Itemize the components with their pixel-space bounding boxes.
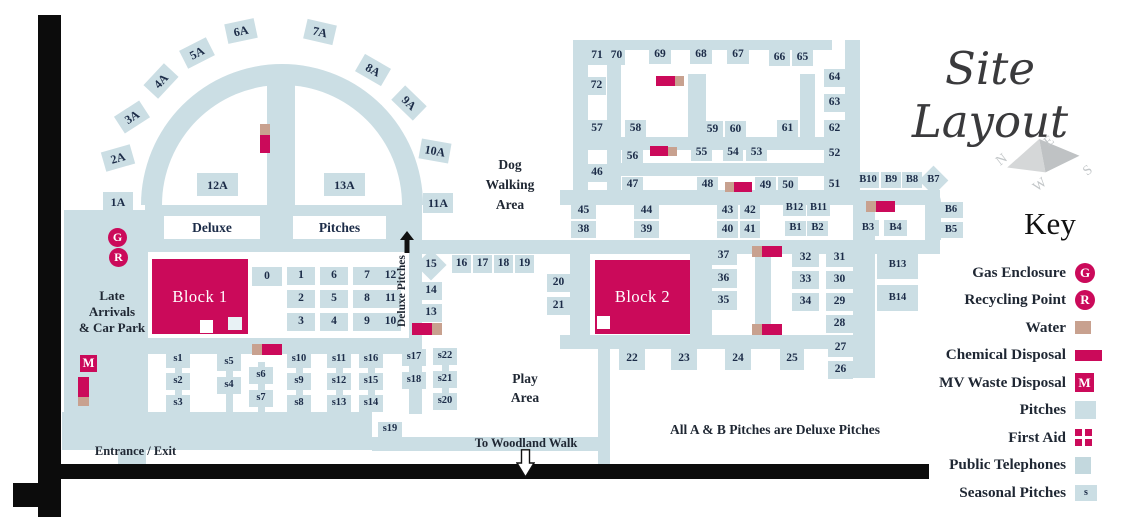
pitch-label: s9 [294,376,303,387]
pitch-2A: 2A [101,144,135,171]
pitch-s4: s4 [217,377,241,394]
pitch-B12: B12 [783,201,806,216]
compass-icon: N E W S [988,122,1106,202]
pitch-label: 6 [331,270,337,282]
pitch-label: 52 [829,148,841,160]
pitch-s3: s3 [166,395,190,412]
pitch-label: 54 [727,147,739,159]
deluxe-label: Deluxe [192,220,232,236]
key-item-label: Public Telephones [949,456,1066,474]
pitch-37: 37 [710,246,737,265]
pitch-12A: 12A [197,173,238,196]
pitch-label: 67 [732,49,744,61]
pitch-7: 7 [353,267,381,285]
pitch-label: 36 [718,273,730,285]
key-item-recycling-point: Recycling PointR [930,287,1106,315]
pitch-label: 3 [298,316,304,328]
pitch-69: 69 [649,46,671,64]
road [598,349,610,464]
key-icon-wrap: G [1075,263,1106,283]
pitch-label: 4 [331,316,337,328]
road [560,335,868,349]
pitch-label: 63 [829,97,841,109]
pitch-label: 26 [835,364,847,376]
pitch-s1: s1 [166,351,190,368]
pitch-label: 45 [578,205,590,217]
pitch-label: 29 [834,296,846,308]
pitch-label: B2 [811,223,823,234]
chemical-disposal-icon [412,323,432,335]
pitch-71: 71 [587,47,607,65]
pitch-26: 26 [828,361,853,379]
pitch-20: 20 [547,274,570,292]
key-item-water: Water [930,314,1106,342]
pitch-label: 32 [800,252,812,264]
pitch-label: B3 [862,223,874,234]
water-icon [260,124,270,135]
gas-enclosure-icon: G [108,228,127,247]
key-icon-wrap [1075,457,1106,474]
pitch-label: 11 [385,293,396,305]
road [690,254,712,337]
pitch-label: 21 [553,300,565,312]
pitch-22: 22 [619,348,645,370]
key-legend: Gas EnclosureGRecycling PointRWaterChemi… [930,259,1106,507]
pitch-label: s14 [364,398,379,409]
pitch-66: 66 [769,50,790,66]
pitch-5: 5 [320,290,348,308]
pitch-label: B5 [945,225,957,236]
pitch-label: 10 [385,316,397,328]
key-item-public-telephone: Public Telephones [930,452,1106,480]
pitch-label: 61 [782,123,794,135]
pitch-57: 57 [587,120,607,138]
pitch-24: 24 [725,348,751,370]
pitch-label: B1 [789,223,801,234]
chemical-disposal-icon [876,201,895,212]
key-item-mv-waste-disposal: MV Waste DisposalM [930,369,1106,397]
pitch-label: 1A [111,196,126,208]
pitch-14: 14 [420,282,442,300]
water-icon [668,147,677,156]
deluxe-pitches-road-label: Deluxe Pitches [396,252,412,330]
pitch-6A: 6A [224,18,258,44]
pitch-label: 48 [702,179,714,191]
pitch-s15: s15 [359,373,383,390]
pitch-s21: s21 [433,371,457,388]
pitch-4: 4 [320,313,348,331]
pitch-label: 51 [829,179,841,191]
deluxe-note-label: All A & B Pitches are Deluxe Pitches [660,422,890,438]
road [800,74,815,138]
pitch-label: 8 [364,293,370,305]
pitch-label: 28 [834,318,846,330]
pitch-label: s15 [364,376,379,387]
pitch-18: 18 [494,255,513,273]
pitch-label: 43 [722,205,734,217]
pitch-label: 70 [611,50,623,62]
water-icon [675,76,684,86]
pitch-s19: s19 [378,422,402,437]
pitch-label: 33 [800,274,812,286]
pitch-label: s21 [438,374,453,385]
boundary-bar-stub [13,483,38,507]
pitch-56: 56 [622,148,643,165]
pitch-label: s20 [438,396,453,407]
pitch-label: 37 [718,250,730,262]
pitches-label-box: Pitches [293,216,386,239]
pitch-s17: s17 [402,349,426,366]
pitch-label: 68 [695,49,707,61]
road [570,254,583,349]
pitch-label: 8A [364,61,383,79]
road [607,163,847,176]
pitch-label: 40 [722,224,734,236]
pitch-s10: s10 [287,351,311,368]
pitch-label: B7 [927,175,939,186]
pitch-label: B12 [786,203,804,214]
chemical-disposal-icon [734,182,752,192]
pitch-label: 19 [519,258,531,270]
pitch-s20: s20 [433,393,457,410]
key-icon-wrap: s [1075,485,1106,501]
pitch-B6: B6 [939,202,963,218]
pitch-label: 7A [311,25,328,40]
public-telephone-icon [1075,457,1091,474]
key-item-label: Gas Enclosure [972,264,1066,282]
block-2-label: Block 2 [615,287,670,307]
pitch-29: 29 [826,293,853,311]
pitch-B5: B5 [939,222,963,238]
recycling-point-icon: R [1075,290,1095,310]
pitch-68: 68 [690,46,712,64]
key-icon-wrap [1075,350,1106,361]
pitch-19: 19 [515,255,534,273]
pitch-label: 34 [800,296,812,308]
pitch-label: 27 [835,342,847,354]
road [755,254,771,335]
pitch-label: B4 [889,223,901,234]
pitch-label: B6 [945,205,957,216]
pitch-70: 70 [608,47,625,65]
pitch-42: 42 [740,202,760,219]
pitch-3A: 3A [114,100,150,133]
pitch-61: 61 [777,120,798,138]
pitch-49: 49 [755,177,776,194]
pitch-50: 50 [778,177,798,194]
key-icon-wrap: R [1075,290,1106,310]
chemical-disposal-icon [260,135,270,153]
key-icon-wrap [1075,429,1106,446]
pitch-label: 12A [207,179,228,191]
pitch-1A: 1A [103,192,133,212]
pitch-label: 59 [707,124,719,136]
water-icon [752,246,762,257]
road [573,40,588,205]
pitch-label: s11 [332,354,346,365]
pitch-s9: s9 [287,373,311,390]
pitch-label: s17 [407,352,422,363]
pitch-label: 5A [188,44,207,61]
pitch-label: 20 [553,277,565,289]
pitch-label: 60 [730,124,742,136]
pitch-label: s5 [224,357,233,368]
pitch-label: s4 [224,380,233,391]
pitch-label: B9 [885,175,897,186]
pitch-label: s7 [256,393,265,404]
pitch-8A: 8A [355,54,391,86]
pitch-label: s8 [294,398,303,409]
key-item-gas-enclosure: Gas EnclosureG [930,259,1106,287]
pitch-B13: B13 [877,252,918,279]
pitch-label: 50 [782,180,794,192]
chemical-disposal-icon [762,246,782,257]
pitch-B2: B2 [807,221,828,236]
pitch-30: 30 [826,271,853,289]
gas-enclosure-icon: G [1075,263,1095,283]
pitch-s6: s6 [249,367,273,384]
pitch-s8: s8 [287,395,311,412]
block-1-label: Block 1 [172,287,227,307]
pitch-label: 9A [400,94,419,113]
pitch-label: B14 [889,293,907,304]
water-icon [252,344,262,355]
pitch-B9: B9 [881,172,901,188]
pitch-s16: s16 [359,351,383,368]
deluxe-pitches-up-arrow-icon [399,231,415,253]
pitch-B14: B14 [877,285,918,311]
pitch-label: s10 [292,354,307,365]
pitch-label: 30 [834,274,846,286]
key-item-first-aid: First Aid [930,424,1106,452]
pitch-72: 72 [587,77,606,95]
pitch-17: 17 [473,255,492,273]
pitch-1: 1 [287,267,315,285]
key-item-label: Water [1026,319,1066,337]
pitch-52: 52 [824,145,845,163]
pitch-label: 9 [364,316,370,328]
pitch-41: 41 [740,221,760,238]
pitch-10A: 10A [418,139,451,164]
pitch-icon [1075,401,1096,419]
key-icon-wrap [1075,401,1106,419]
pitch-62: 62 [824,120,845,138]
pitch-9: 9 [353,313,381,331]
pitch-4A: 4A [143,63,178,99]
pitch-label: B8 [906,175,918,186]
water-icon [866,201,876,212]
pitch-s14: s14 [359,395,383,412]
pitches-label: Pitches [319,220,360,236]
pitch-51: 51 [824,176,845,193]
pitch-label: s22 [438,351,453,362]
mv-waste-disposal-icon: M [1075,373,1094,392]
pitch-label: 64 [829,72,841,84]
pitch-label: 5 [331,293,337,305]
pitch-67: 67 [727,46,749,64]
pitch-label: s19 [383,424,398,435]
key-item-label: First Aid [1008,429,1066,447]
pitch-label: 14 [425,285,437,297]
pitch-label: 13 [425,307,437,319]
pitch-58: 58 [625,120,646,138]
pitch-64: 64 [824,69,845,87]
pitch-65: 65 [792,50,813,66]
pitch-label: s1 [173,354,182,365]
pitch-8: 8 [353,290,381,308]
pitch-27: 27 [828,339,853,357]
pitch-label: s3 [173,398,182,409]
pitch-label: 1 [298,270,304,282]
pitch-label: s18 [407,375,422,386]
pitch-s22: s22 [433,348,457,365]
block-1-door-white [200,320,213,333]
key-item-label: Recycling Point [964,291,1066,309]
pitch-label: 15 [425,259,437,271]
pitch-s2: s2 [166,373,190,390]
water-icon [432,323,442,335]
pitch-label: 38 [578,224,590,236]
compass-s: S [1080,163,1095,180]
pitch-label: 0 [264,271,270,283]
pitch-40: 40 [717,221,738,238]
pitch-label: s13 [332,398,347,409]
pitch-label: 69 [654,49,666,61]
pitch-label: 39 [641,224,653,236]
first-aid-icon [1075,429,1092,446]
key-icon-wrap: M [1075,373,1106,392]
pitch-label: 2A [109,150,126,166]
pitch-31: 31 [826,249,853,267]
chemical-disposal-icon [762,324,782,335]
chemical-disposal-icon [650,146,668,156]
pitch-13A: 13A [324,173,365,196]
key-title: Key [985,206,1115,242]
block-1-door-blue [228,317,242,330]
boundary-bar-bottom [61,464,929,479]
compass-w: W [1030,175,1050,195]
pitch-label: 16 [456,258,468,270]
site-layout-map: Deluxe Pitches 1A2A3A4A5A6A7A8A9A10A11A1… [0,0,1123,523]
pitch-s12: s12 [327,373,351,390]
key-item-pitch: Pitches [930,397,1106,425]
pitch-53: 53 [746,144,767,161]
pitch-label: s6 [256,370,265,381]
pitch-label: B10 [859,175,877,186]
pitch-label: s16 [364,354,379,365]
pitch-46: 46 [587,164,607,182]
pitch-6: 6 [320,267,348,285]
pitch-s13: s13 [327,395,351,412]
pitch-7A: 7A [303,19,337,45]
play-area-label: Play Area [485,369,565,407]
pitch-23: 23 [671,348,697,370]
block-2-door-white [597,316,610,329]
pitch-label: 17 [477,258,489,270]
key-item-label: Seasonal Pitches [959,484,1066,502]
pitch-48: 48 [697,177,718,193]
pitch-28: 28 [826,315,853,333]
road [267,78,295,208]
pitch-44: 44 [634,202,659,219]
pitch-label: 41 [744,224,756,236]
pitch-16: 16 [452,255,471,273]
chemical-disposal-icon [1075,350,1102,361]
mv-letter: M [83,356,95,371]
pitch-11A: 11A [423,193,453,213]
water-icon [752,324,762,335]
pitch-B3: B3 [857,220,879,236]
pitch-label: 47 [627,179,639,191]
pitch-38: 38 [571,221,596,238]
pitch-60: 60 [725,121,746,138]
pitch-label: 65 [797,52,809,64]
pitch-label: 53 [751,147,763,159]
pitch-45: 45 [571,202,596,219]
water-icon [1075,321,1091,334]
pitch-label: 24 [732,353,744,365]
pitch-9A: 9A [391,85,426,120]
pitch-55: 55 [691,144,712,161]
pitch-B4: B4 [884,220,907,236]
deluxe-label-box: Deluxe [164,216,260,239]
pitch-label: 72 [591,80,603,92]
pitch-label: 58 [630,123,642,135]
pitch-label: B13 [889,260,907,271]
pitch-59: 59 [702,121,723,138]
pitch-63: 63 [824,94,845,112]
pitch-label: 22 [626,353,638,365]
woodland-walk-down-arrow-icon [516,449,535,478]
chemical-disposal-icon [262,344,282,355]
pitch-label: s2 [173,376,182,387]
mv-waste-disposal-icon: M [80,355,97,372]
pitch-3: 3 [287,313,315,331]
water-icon [78,397,89,406]
key-item-chemical-disposal: Chemical Disposal [930,342,1106,370]
pitch-label: s12 [332,376,347,387]
key-item-label: Chemical Disposal [946,346,1066,364]
pitch-label: 11A [428,197,448,209]
pitch-label: 55 [696,147,708,159]
recycling-letter: R [114,250,123,265]
pitch-label: 25 [786,353,798,365]
pitch-21: 21 [547,297,570,315]
pitch-0: 0 [252,267,282,286]
dog-walking-area-label: Dog Walking Area [460,155,560,215]
pitch-label: 42 [744,205,756,217]
pitch-2: 2 [287,290,315,308]
key-icon-wrap [1075,321,1106,334]
pitch-34: 34 [792,293,819,311]
pitch-B11: B11 [807,201,830,216]
pitch-label: 13A [334,179,355,191]
pitch-label: 7 [364,270,370,282]
pitch-label: 3A [123,108,142,126]
recycling-point-icon: R [109,248,128,267]
pitch-32: 32 [792,249,819,267]
pitch-label: 23 [678,353,690,365]
pitch-label: 2 [298,293,304,305]
pitch-5A: 5A [179,37,215,68]
chemical-disposal-icon [656,76,675,86]
pitch-label: 49 [760,180,772,192]
pitch-35: 35 [710,291,737,310]
water-icon [725,182,734,192]
gas-letter: G [113,230,122,245]
pitch-54: 54 [723,144,743,161]
compass-n: N [993,151,1010,169]
